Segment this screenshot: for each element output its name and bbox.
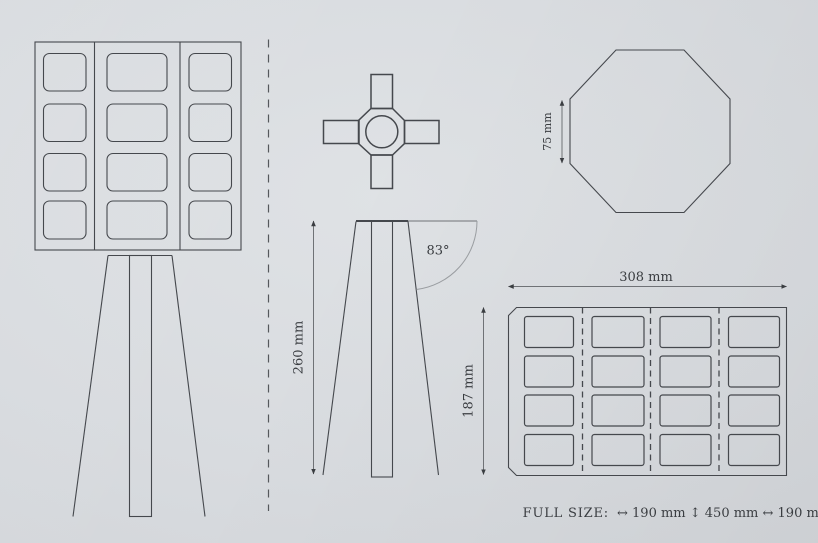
front-view <box>35 42 241 517</box>
front-shade-cell <box>44 54 87 92</box>
panel-cell <box>660 435 711 466</box>
panel-cell <box>660 356 711 387</box>
front-shade-outline <box>35 42 241 250</box>
flat-panel-view: 308 mm <box>509 270 787 476</box>
front-shade-cell <box>107 201 167 239</box>
side-view: 83° 260 mm 187 mm <box>292 221 484 477</box>
panel-cell <box>729 435 780 466</box>
angle-label: 83° <box>426 244 449 259</box>
front-shade-cell <box>107 54 167 92</box>
panel-outline <box>509 308 787 476</box>
top-arm-east <box>405 121 440 144</box>
full-size-value: ↔ 190 mm ↕ 450 mm ↔ 190 mm <box>617 506 818 521</box>
front-shade-cell <box>107 154 167 192</box>
side-center-leg <box>372 221 393 477</box>
octagon-width-dim-label: 75 mm <box>541 112 554 151</box>
side-right-leg-line <box>408 222 439 476</box>
front-center-leg <box>130 256 152 517</box>
front-shade-cell <box>107 104 167 142</box>
panel-cell <box>525 435 574 466</box>
full-size-note: FULL SIZE: ↔ 190 mm ↕ 450 mm ↔ 190 mm <box>523 506 818 521</box>
octagon-top-view: 75 mm <box>541 50 730 213</box>
panel-cell <box>592 317 644 348</box>
full-size-label: FULL SIZE: <box>523 506 609 521</box>
side-left-leg-line <box>323 222 356 476</box>
top-arm-south <box>371 155 393 189</box>
panel-width-dim-label: 308 mm <box>619 270 673 285</box>
front-right-leg-line <box>172 256 205 517</box>
front-shade-cell <box>189 154 232 192</box>
front-shade-cell <box>189 201 232 239</box>
panel-cell <box>729 395 780 426</box>
panel-cell <box>660 317 711 348</box>
front-shade-cell <box>44 154 87 192</box>
front-shade-cell <box>44 201 87 239</box>
panel-cell <box>525 356 574 387</box>
blueprint-canvas: 75 mm 83° 260 mm 187 mm <box>0 0 818 543</box>
panel-cell <box>729 317 780 348</box>
panel-cell <box>729 356 780 387</box>
front-shade-cell <box>189 104 232 142</box>
panel-cell <box>592 395 644 426</box>
tripod-height-dim-label: 260 mm <box>292 321 307 375</box>
top-view <box>324 75 440 189</box>
panel-cell <box>592 435 644 466</box>
top-arm-north <box>371 75 393 109</box>
panel-cell <box>525 395 574 426</box>
top-arm-west <box>324 121 360 144</box>
panel-cell <box>592 356 644 387</box>
leg-length-dim-label: 187 mm <box>462 364 477 418</box>
front-shade-cell <box>44 104 87 142</box>
technical-drawing: 75 mm 83° 260 mm 187 mm <box>0 0 818 543</box>
panel-cell <box>660 395 711 426</box>
panel-cell <box>525 317 574 348</box>
front-shade-cell <box>189 54 232 92</box>
front-left-leg-line <box>73 256 108 517</box>
octagon-outline <box>570 50 730 213</box>
top-hub-circle <box>366 116 398 148</box>
